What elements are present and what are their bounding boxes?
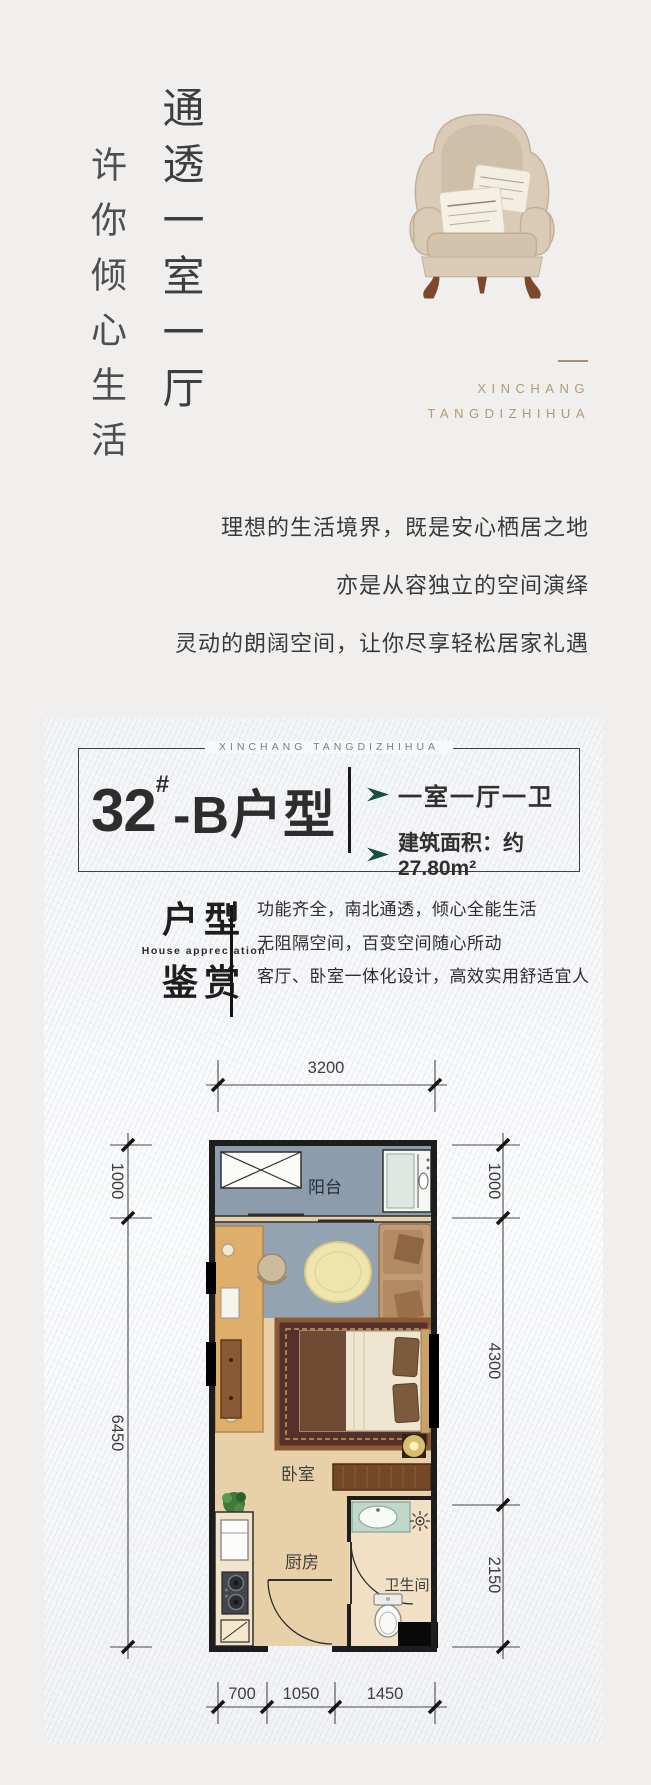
ac-unit-icon <box>221 1152 301 1188</box>
intro-line: 灵动的朗阔空间，让你尽享轻松居家礼遇 <box>175 615 589 673</box>
sink-counter-icon <box>352 1502 410 1532</box>
feature-layout-label: 一室一厅一卫 <box>398 777 554 812</box>
appreciation-line: 客厅、卧室一体化设计，高效实用舒适宜人 <box>257 960 590 994</box>
dim-bottom-1: 700 <box>228 1685 256 1703</box>
bed-icon <box>300 1329 431 1433</box>
nightstand-lamp-icon <box>402 1434 426 1458</box>
toilet-icon <box>374 1594 402 1637</box>
feature-layout: 一室一厅一卫 <box>367 777 554 812</box>
washing-machine-icon <box>383 1150 431 1212</box>
unit-type-label: -B户型 <box>173 773 336 848</box>
dim-right-3: 2150 <box>485 1557 503 1594</box>
hero-slogan-primary: 通透一室一厅 <box>150 86 211 422</box>
appreciation-line: 功能齐全，南北通透，倾心全能生活 <box>257 893 590 927</box>
unit-card: XINCHANG TANGDIZHIHUA 32 # -B户型 一室一厅一卫 建… <box>44 718 603 1744</box>
dim-right-1: 1000 <box>485 1163 503 1200</box>
appreciation-line: 无阻隔空间，百变空间随心所动 <box>257 927 590 961</box>
bathroom-label: 卫生间 <box>384 1577 429 1594</box>
bedroom-label: 卧室 <box>281 1465 315 1484</box>
brand-english-line2: TANGDIZHIHUA <box>427 406 590 421</box>
feature-area: 建筑面积：约27.80m² <box>367 827 579 881</box>
dim-left-1: 1000 <box>108 1163 126 1200</box>
title-divider <box>348 767 351 853</box>
dresser-icon <box>333 1464 431 1490</box>
cabinet-icon <box>221 1620 249 1642</box>
stove-icon <box>222 1572 248 1614</box>
dim-bottom-2: 1050 <box>283 1685 320 1703</box>
promo-page: 许你倾心生活 通透一室一厅 XINCHANG TANGDIZHIHUA 理想 <box>0 0 651 1785</box>
unit-title: 32 # -B户型 <box>91 749 336 871</box>
kitchen-label: 厨房 <box>285 1553 319 1572</box>
dim-left-2: 6450 <box>108 1415 126 1452</box>
unit-title-box: XINCHANG TANGDIZHIHUA 32 # -B户型 一室一厅一卫 建… <box>78 748 580 872</box>
chair-legs <box>423 277 540 299</box>
brand-english-line1: XINCHANG <box>477 381 590 396</box>
pillow-front-icon <box>439 187 505 241</box>
gold-divider <box>558 360 588 362</box>
dim-bottom-3: 1450 <box>367 1685 404 1703</box>
intro-line: 理想的生活境界，既是安心栖居之地 <box>175 499 589 557</box>
desk-chair-icon <box>258 1254 286 1283</box>
intro-paragraph: 理想的生活境界，既是安心栖居之地 亦是从容独立的空间演绎 灵动的朗阔空间，让你尽… <box>175 499 589 673</box>
armchair-image <box>388 108 576 302</box>
unit-number: 32 <box>91 776 156 845</box>
balcony-label: 阳台 <box>308 1178 342 1197</box>
sofa-icon <box>379 1224 431 1330</box>
kitchen-counter <box>215 1512 253 1646</box>
dim-top: 3200 <box>308 1059 345 1077</box>
intro-line: 亦是从容独立的空间演绎 <box>175 557 589 615</box>
green-arrow-icon <box>367 786 389 803</box>
appreciation-divider <box>230 905 233 1017</box>
green-arrow-icon <box>367 846 389 863</box>
fridge-icon <box>221 1520 248 1560</box>
round-rug-icon <box>305 1242 371 1302</box>
tv-console-icon <box>221 1340 241 1418</box>
dim-right-2: 4300 <box>485 1343 503 1380</box>
floorplan-drawing: 阳台 卧室 厨房 卫生间 <box>44 1040 603 1743</box>
hero-slogan-secondary: 许你倾心生活 <box>80 146 132 476</box>
appreciation-description: 功能齐全，南北通透，倾心全能生活 无阻隔空间，百变空间随心所动 客厅、卧室一体化… <box>257 893 590 994</box>
feature-area-label: 建筑面积：约27.80m² <box>398 827 579 881</box>
unit-number-hash: # <box>156 771 169 799</box>
ceiling-lamp-icon <box>410 1511 430 1531</box>
